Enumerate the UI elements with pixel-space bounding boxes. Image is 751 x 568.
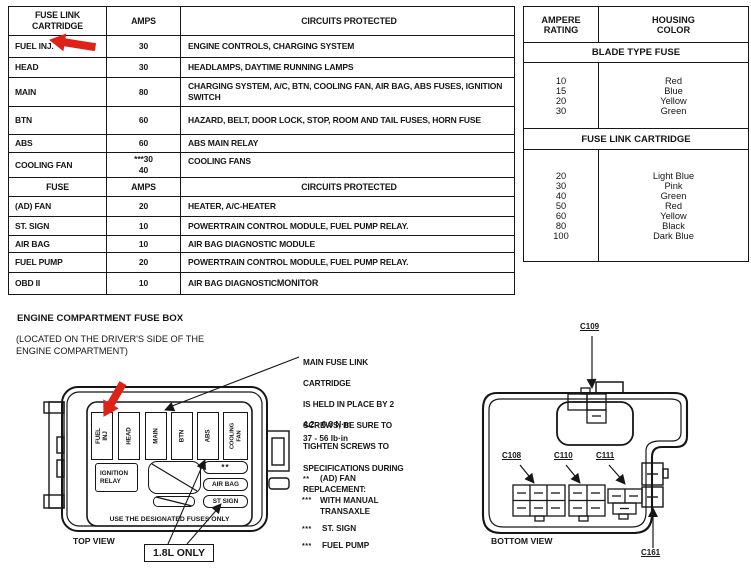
fuse-name: OBD II	[9, 273, 107, 294]
connector-c161	[642, 463, 668, 507]
blade-amps-column: 10 15 20 30	[524, 63, 599, 128]
color-value: Yellow	[599, 211, 748, 221]
header-amps: AMPS	[107, 7, 181, 35]
c111-arrowhead-icon	[615, 474, 629, 488]
fuse-circuits: POWERTRAIN CONTROL MODULE, FUEL PUMP REL…	[181, 253, 514, 272]
fuse-name: FUEL PUMP	[9, 253, 107, 272]
amp-value: 15	[524, 86, 598, 96]
header-ampere-rating: AMPERE RATING	[524, 7, 599, 42]
fuse-name: ST. SIGN	[9, 217, 107, 235]
fuse-name: ABS	[9, 135, 107, 152]
amp-value: 30	[524, 181, 598, 191]
designated-fuses-note: USE THE DESIGNATED FUSES ONLY	[87, 516, 252, 523]
fuse-slot-fuel-inj: FUEL INJ	[91, 412, 113, 460]
cartridge-rows: 20 30 40 50 60 80 100 Light Blue Pink Gr…	[524, 150, 748, 261]
fuse-amps: ***30 40	[107, 153, 181, 177]
table-header-row: FUSE LINK CARTRIDGE AMPS CIRCUITS PROTEC…	[9, 7, 514, 36]
slot-label: HEAD	[125, 427, 132, 444]
color-value: Dark Blue	[599, 231, 748, 241]
legend-label-ad-fan: (AD) FAN	[320, 474, 356, 483]
color-value: Yellow	[599, 96, 748, 106]
slot-label: BTN	[178, 430, 185, 442]
amp-value: 20	[524, 171, 598, 181]
fuse-amps: 10	[107, 236, 181, 252]
fuse-amps: 60	[107, 135, 181, 152]
st-sign-box: ST SIGN	[203, 495, 248, 508]
fuse-amps: 60	[107, 107, 181, 134]
fuse-circuits: POWERTRAIN CONTROL MODULE, FUEL PUMP REL…	[181, 217, 514, 235]
header-amps-2: AMPS	[107, 178, 181, 196]
table-row: OBD II 10 AIR BAG DIAGNOSTIC MONITOR	[9, 273, 514, 294]
fuse-circuits: HEATER, A/C-HEATER	[181, 197, 514, 216]
fuse-amps-line1: ***30	[134, 154, 153, 165]
bottom-view-outline	[483, 393, 687, 533]
c109-arrowhead-icon	[587, 379, 598, 390]
header-housing-color: HOUSING COLOR	[599, 7, 748, 42]
fuse-amps: 20	[107, 197, 181, 216]
amp-value: 50	[524, 201, 598, 211]
color-value: Red	[599, 201, 748, 211]
header-circuits-2: CIRCUITS PROTECTED	[181, 178, 514, 196]
amp-value: 30	[524, 106, 598, 116]
bottom-view-outline-inner	[489, 399, 681, 527]
callout-18l-only: 1.8L ONLY	[144, 544, 214, 562]
color-value: Pink	[599, 181, 748, 191]
band-fuse-link-cartridge: FUSE LINK CARTRIDGE	[524, 129, 748, 150]
connector-c110	[569, 485, 605, 521]
header-fuse: FUSE	[9, 178, 107, 196]
connector-c111	[608, 489, 642, 519]
fuse-name: FUEL INJ.	[9, 36, 107, 57]
fuse-link-table: FUSE LINK CARTRIDGE AMPS CIRCUITS PROTEC…	[8, 6, 515, 295]
fuse-name: BTN	[9, 107, 107, 134]
amp-value: 10	[524, 76, 598, 86]
blade-fuse-rows: 10 15 20 30 Red Blue Yellow Green	[524, 63, 748, 129]
connector-label-c161: C161	[641, 548, 660, 557]
fuse-amps: 30	[107, 36, 181, 57]
table-row: BTN 60 HAZARD, BELT, DOOR LOCK, STOP, RO…	[9, 107, 514, 135]
legend-label-fuel-pump: FUEL PUMP	[322, 541, 369, 550]
color-value: Green	[599, 106, 748, 116]
slot-label: FUEL INJ	[95, 428, 109, 444]
table-header-row-2: FUSE AMPS CIRCUITS PROTECTED	[9, 178, 514, 197]
table-row: HEAD 30 HEADLAMPS, DAYTIME RUNNING LAMPS	[9, 58, 514, 78]
note-arrow-line	[167, 357, 299, 408]
c109-chamber	[557, 402, 633, 445]
legend-marker: ***	[302, 543, 312, 550]
circuits-text-bold: MONITOR	[277, 278, 318, 289]
fuse-circuits: HAZARD, BELT, DOOR LOCK, STOP, ROOM AND …	[181, 107, 514, 134]
connector-c109	[568, 388, 606, 423]
legend-marker: ***	[302, 526, 312, 533]
fuse-name: COOLING FAN	[9, 153, 107, 177]
bottom-view-caption: BOTTOM VIEW	[491, 536, 552, 546]
fuse-amps: 10	[107, 217, 181, 235]
table-row: ABS 60 ABS MAIN RELAY	[9, 135, 514, 153]
blank-box-large	[148, 461, 201, 494]
fuse-name: (AD) FAN	[9, 197, 107, 216]
fuse-slot-main: MAIN	[145, 412, 167, 460]
table-row: MAIN 80 CHARGING SYSTEM, A/C, BTN, COOLI…	[9, 78, 514, 107]
note-line: IS HELD IN PLACE BY 2	[303, 400, 404, 411]
color-value: Light Blue	[599, 171, 748, 181]
amp-value: 20	[524, 96, 598, 106]
color-value: Green	[599, 191, 748, 201]
right-table-header: AMPERE RATING HOUSING COLOR	[524, 7, 748, 43]
note-line: CARTRIDGE	[303, 379, 404, 390]
ampere-housing-table: AMPERE RATING HOUSING COLOR BLADE TYPE F…	[523, 6, 749, 262]
legend-label-st-sign: ST. SIGN	[322, 524, 356, 533]
c108-arrowhead-icon	[524, 473, 538, 487]
amp-value: 60	[524, 211, 598, 221]
fuse-circuits: ABS MAIN RELAY	[181, 135, 514, 152]
top-view-caption: TOP VIEW	[73, 536, 115, 546]
fuse-circuits: CHARGING SYSTEM, A/C, BTN, COOLING FAN, …	[181, 78, 514, 106]
fuse-slot-abs: ABS	[197, 412, 219, 460]
fuse-amps: 20	[107, 253, 181, 272]
fuse-amps-line2: 40	[139, 165, 148, 176]
air-bag-box: AIR BAG	[203, 478, 248, 491]
color-value: Blue	[599, 86, 748, 96]
fuse-name: HEAD	[9, 58, 107, 77]
c110-arrowhead-icon	[570, 473, 584, 487]
amp-value: 40	[524, 191, 598, 201]
connector-label-c108: C108	[502, 451, 521, 460]
slot-label: MAIN	[152, 428, 159, 443]
top-protrusion	[596, 382, 623, 393]
fuse-diagram-page: FUSE LINK CARTRIDGE AMPS CIRCUITS PROTEC…	[0, 0, 751, 568]
table-row: ST. SIGN 10 POWERTRAIN CONTROL MODULE, F…	[9, 217, 514, 236]
legend-marker: ***	[302, 497, 312, 504]
connector-label-c111: C111	[596, 451, 614, 460]
table-row: FUEL PUMP 20 POWERTRAIN CONTROL MODULE, …	[9, 253, 514, 273]
torque-spec-imperial: 37 - 56 lb·in	[303, 434, 348, 443]
ignition-relay-box: IGNITION RELAY	[95, 463, 138, 492]
note-line: TIGHTEN SCREWS TO	[303, 442, 404, 453]
table-row: FUEL INJ. 30 ENGINE CONTROLS, CHARGING S…	[9, 36, 514, 58]
table-row: AIR BAG 10 AIR BAG DIAGNOSTIC MODULE	[9, 236, 514, 253]
blank-box-small	[153, 496, 195, 507]
table-row: COOLING FAN ***30 40 COOLING FANS	[9, 153, 514, 178]
fuse-slot-head: HEAD	[118, 412, 140, 460]
fuse-circuits: COOLING FANS	[181, 153, 514, 177]
right-clip	[267, 431, 289, 489]
fuse-amps: 80	[107, 78, 181, 106]
fuse-slot-btn: BTN	[171, 412, 193, 460]
fuse-name: MAIN	[9, 78, 107, 106]
fuse-circuits: ENGINE CONTROLS, CHARGING SYSTEM	[181, 36, 514, 57]
legend-marker: **	[303, 476, 309, 483]
c161-arrowhead-icon	[648, 507, 658, 517]
header-circuits: CIRCUITS PROTECTED	[181, 7, 514, 35]
circuits-text: AIR BAG DIAGNOSTIC	[188, 278, 277, 289]
connector-label-c109: C109	[580, 322, 599, 331]
amp-value: 80	[524, 221, 598, 231]
amp-value: 100	[524, 231, 598, 241]
fuse-circuits: HEADLAMPS, DAYTIME RUNNING LAMPS	[181, 58, 514, 77]
left-clip	[44, 402, 64, 508]
fuse-amps: 10	[107, 273, 181, 294]
color-value: Red	[599, 76, 748, 86]
section-title: ENGINE COMPARTMENT FUSE BOX	[17, 313, 183, 324]
connector-label-c110: C110	[554, 451, 573, 460]
note-line: MAIN FUSE LINK	[303, 358, 404, 369]
band-blade-type-fuse: BLADE TYPE FUSE	[524, 43, 748, 63]
note-line: REPLACEMENT:	[303, 485, 404, 496]
fuse-slot-cooling-fan: COOLING FAN	[223, 412, 248, 460]
fuse-circuits: AIR BAG DIAGNOSTIC MODULE	[181, 236, 514, 252]
table-row: (AD) FAN 20 HEATER, A/C-HEATER	[9, 197, 514, 217]
fuse-circuits: AIR BAG DIAGNOSTIC MONITOR	[181, 273, 514, 294]
torque-spec-metric: 4.2 - 6.3 N·m	[303, 420, 351, 429]
blade-color-column: Red Blue Yellow Green	[599, 63, 748, 128]
section-subtitle: (LOCATED ON THE DRIVER'S SIDE OF THE ENG…	[16, 334, 204, 357]
connector-c108	[513, 485, 565, 521]
fuse-name: AIR BAG	[9, 236, 107, 252]
cartridge-amps-column: 20 30 40 50 60 80 100	[524, 150, 599, 261]
color-value: Black	[599, 221, 748, 231]
slot-label: COOLING FAN	[229, 423, 242, 449]
cartridge-color-column: Light Blue Pink Green Red Yellow Black D…	[599, 150, 748, 261]
ad-fan-dots-box: **	[203, 461, 248, 474]
slot-label: ABS	[204, 430, 211, 443]
legend-label-manual-transaxle: WITH MANUAL TRANSAXLE	[320, 495, 379, 517]
fuse-amps: 30	[107, 58, 181, 77]
header-fuse-link-cartridge: FUSE LINK CARTRIDGE	[9, 7, 107, 35]
note-line: SPECIFICATIONS DURING	[303, 464, 404, 475]
